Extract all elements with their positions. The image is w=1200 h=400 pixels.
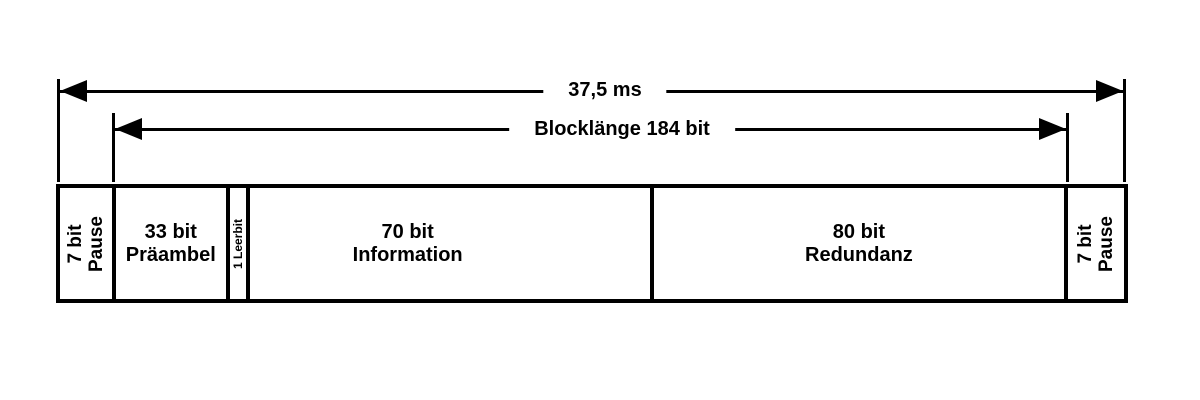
segment-label-line: 7 bit — [1075, 216, 1096, 272]
segment-label-line: 1 Leerbit — [232, 218, 244, 268]
arrowhead-right-icon — [1039, 118, 1066, 140]
block-length-label: Blocklänge 184 bit — [509, 118, 735, 140]
segment-label-line: Information — [353, 244, 463, 267]
arrowhead-left-icon — [115, 118, 142, 140]
segment-label-line: Redundanz — [805, 244, 913, 267]
segment-label-line: 33 bit — [126, 221, 216, 244]
segment-label: 7 bit Pause — [65, 216, 107, 272]
segment-pause-trailing: 7 bit Pause — [1068, 188, 1124, 299]
segment-leerbit: 1 Leerbit — [230, 188, 250, 299]
segment-label-line: 7 bit — [65, 216, 86, 272]
segment-redundanz: 80 bit Redundanz — [654, 188, 1068, 299]
timing-duration-label: 37,5 ms — [543, 79, 666, 101]
arrowhead-left-icon — [60, 80, 87, 102]
segment-label: 70 bit Information — [353, 221, 463, 267]
segment-label: 33 bit Präambel — [126, 221, 216, 267]
segment-label-line: Pause — [86, 216, 107, 272]
frame-timing-diagram: 37,5 ms Blocklänge 184 bit 7 bit Pause 3… — [0, 0, 1200, 400]
frame-box: 7 bit Pause 33 bit Präambel 1 Leerbit 70… — [56, 184, 1128, 303]
segment-information: 70 bit Information — [250, 188, 654, 299]
segment-praeambel: 33 bit Präambel — [116, 188, 230, 299]
timing-arrow-right-tick — [1123, 79, 1126, 182]
segment-label-line: 70 bit — [353, 221, 463, 244]
segment-label-line: 80 bit — [805, 221, 913, 244]
segment-label-line: Präambel — [126, 244, 216, 267]
segment-label: 7 bit Pause — [1075, 216, 1117, 272]
segment-label-line: Pause — [1096, 216, 1117, 272]
arrowhead-right-icon — [1096, 80, 1123, 102]
segment-label: 80 bit Redundanz — [805, 221, 913, 267]
block-arrow-right-tick — [1066, 113, 1069, 182]
segment-pause-leading: 7 bit Pause — [60, 188, 116, 299]
segment-label: 1 Leerbit — [232, 218, 244, 268]
